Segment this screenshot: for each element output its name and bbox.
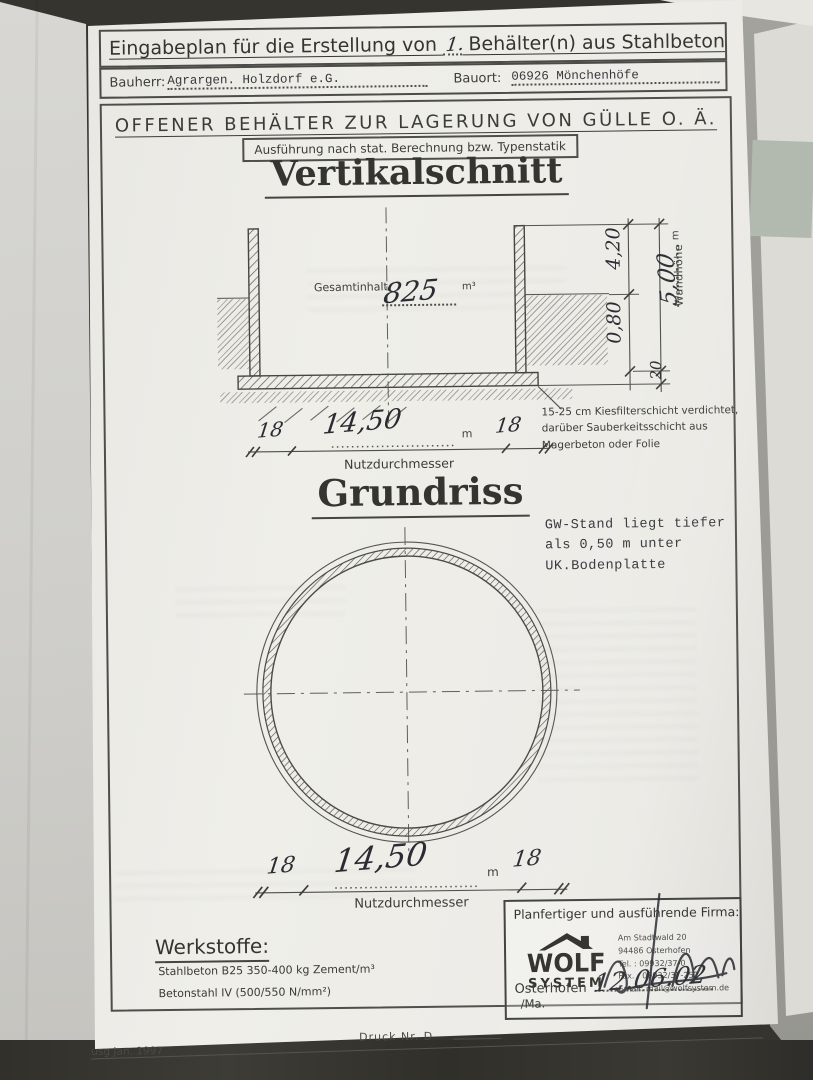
wall-thickness-right-handwritten: 18 [511,846,543,873]
bauherr-value: Agrargen. Holzdorf e.G. [167,71,427,90]
slab-thickness-handwritten: 20 [647,355,665,385]
wall-thickness-right-handwritten: 18 [494,412,523,438]
firm-signature-row: Osterhofen 12.06.02 /Ma. [514,974,736,1012]
plan-view-heading-text: Grundriss [311,469,530,520]
diameter-value-handwritten: 14,50 [332,835,430,880]
plan-view-drawing [240,521,584,870]
tank-count-slot: 1. [443,33,463,55]
plan-title-prefix: Eingabeplan für die Erstellung von [109,34,443,60]
bauort-value: 06926 Mönchenhöfe [511,67,719,86]
firm-initials: /Ma. [521,996,546,1010]
firm-place: Osterhofen [514,981,586,997]
diameter-value-handwritten: 14,50 [321,403,403,440]
wall-height-unit: m [670,230,681,240]
dim-lower-handwritten: 0,80 [603,298,626,346]
photo-of-construction-plan: Eingabeplan für die Erstellung von 1. Be… [0,0,813,1080]
section-diameter-dimension: 18 14,50 m 18 Nutzdurchmesser [244,414,555,474]
tank-count-handwritten: 1. [444,33,465,56]
firm-box: Planfertiger und ausführende Firma: WOLF… [503,897,742,1020]
foundation-note: 15-25 cm Kiesfilterschicht verdichtet, d… [541,402,742,453]
owner-row: Bauherr: Agrargen. Holzdorf e.G. Bauort:… [99,60,727,99]
diameter-unit: m [462,427,473,440]
plan-document: Eingabeplan für die Erstellung von 1. Be… [89,14,782,1067]
materials-line: Stahlbeton B25 350-400 kg Zement/m³ [158,963,375,979]
foundation-note-line: Magerbeton oder Folie [542,435,742,454]
bauort-label: Bauort: [453,71,501,87]
wall-height-label: Wandhöhe [672,244,686,306]
dim-upper-handwritten: 4,20 [602,224,625,272]
content-label: Gesamtinhalt [314,280,388,294]
foundation-note-line: 15-25 cm Kiesfilterschicht verdichtet, [541,402,741,421]
footer-print-number: Druck Nr. D [359,1030,433,1044]
wall-thickness-left-handwritten: 18 [256,417,285,443]
content-value-handwritten: 825 [382,273,440,310]
materials-line: Betonstahl IV (500/550 N/mm²) [158,985,331,1000]
wall-thickness-left-handwritten: 18 [265,853,297,880]
plan-view-heading: Grundriss [104,466,736,518]
bauherr-label: Bauherr: [109,75,165,91]
diameter-unit: m [487,865,499,879]
vertical-section-heading: Vertikalschnitt [100,148,732,197]
content-slot: 825 [382,281,456,306]
plan-title-suffix: Behälter(n) aus Stahlbeton [462,30,725,55]
materials-heading: Werkstoffe: [155,934,269,963]
footer-dash-line [453,1038,501,1040]
vertical-section-heading-text: Vertikalschnitt [264,150,568,199]
date-slot: 12.06.02 [595,974,713,991]
content-unit: m³ [462,281,476,292]
